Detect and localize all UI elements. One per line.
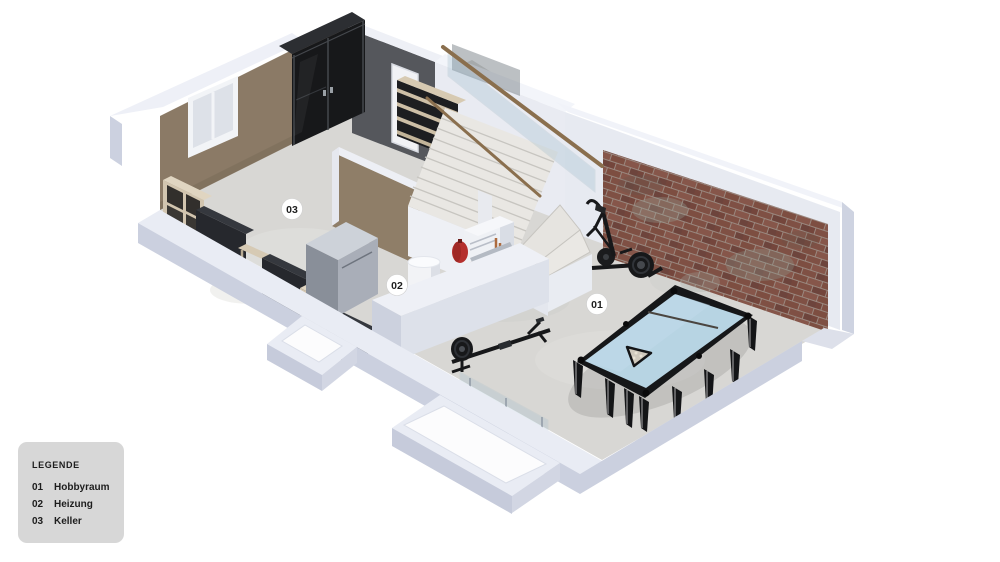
svg-text:01: 01 [591, 299, 603, 311]
legend-item-keller: 03 Keller [32, 516, 110, 527]
legend-label: Keller [54, 516, 82, 527]
legend-title: LEGENDE [32, 460, 110, 470]
legend-code: 01 [32, 482, 54, 493]
svg-text:03: 03 [286, 204, 298, 216]
legend: LEGENDE 01 Hobbyraum 02 Heizung 03 Kelle… [18, 442, 124, 543]
room-label-01: 01 [587, 294, 608, 315]
legend-item-heizung: 02 Heizung [32, 499, 110, 510]
svg-text:02: 02 [391, 280, 403, 292]
legend-code: 02 [32, 499, 54, 510]
legend-code: 03 [32, 516, 54, 527]
legend-label: Hobbyraum [54, 482, 110, 493]
floorplan-scene: 01 02 03 [0, 0, 1000, 562]
legend-item-hobbyraum: 01 Hobbyraum [32, 482, 110, 493]
room-label-02: 02 [387, 275, 408, 296]
room-label-03: 03 [282, 199, 303, 220]
floorplan-render: 01 02 03 LEGENDE 01 Hobbyraum 02 Heizung… [0, 0, 1000, 562]
legend-label: Heizung [54, 499, 93, 510]
